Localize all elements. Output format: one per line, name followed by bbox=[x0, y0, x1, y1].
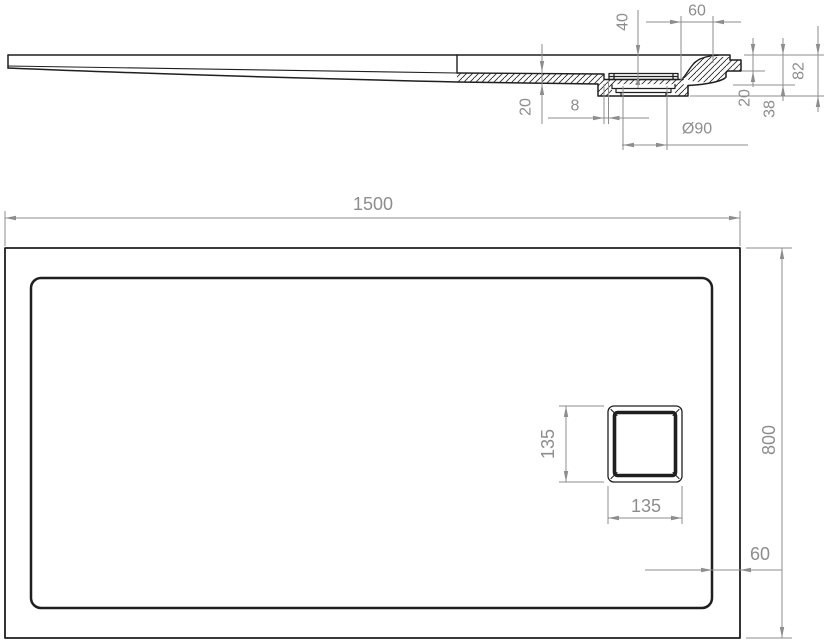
dim-label-20-edge: 20 bbox=[737, 89, 754, 107]
hatch-drain-boss-left bbox=[598, 84, 612, 96]
dim-arrow bbox=[751, 44, 755, 55]
dim-arrow bbox=[701, 568, 712, 572]
plan-view: 1500 800 135 135 60 bbox=[5, 194, 792, 638]
dim-arrow bbox=[5, 216, 16, 220]
hatch-drain-boss-right bbox=[675, 84, 688, 96]
dim-arrow bbox=[781, 85, 785, 96]
dim-arrow bbox=[564, 406, 568, 417]
dim-arrow bbox=[713, 20, 724, 24]
dim-arrow bbox=[729, 216, 740, 220]
dim-arrow bbox=[608, 516, 619, 520]
dim-arrow bbox=[740, 568, 751, 572]
dim-arrow bbox=[623, 143, 634, 147]
dim-label-20-floor: 20 bbox=[518, 98, 535, 116]
hatch-rim-edge bbox=[683, 57, 741, 83]
dim-label-135-vertical: 135 bbox=[538, 429, 558, 459]
drain-cover-outer bbox=[608, 406, 682, 482]
dim-arrow bbox=[780, 627, 784, 638]
dim-arrow bbox=[671, 516, 682, 520]
drain-cover-corner-ticks bbox=[611, 410, 679, 479]
dim-arrow bbox=[593, 116, 604, 120]
dim-label-40: 40 bbox=[615, 13, 632, 31]
drain-cover-frame bbox=[615, 413, 676, 476]
dim-arrow bbox=[781, 44, 785, 55]
dim-arrow bbox=[540, 61, 544, 72]
dim-label-diameter-90: Ø90 bbox=[682, 121, 712, 138]
drawing-svg: 40 60 20 8 Ø90 20 bbox=[0, 0, 826, 643]
dim-label-1500: 1500 bbox=[353, 194, 393, 214]
dim-arrow bbox=[564, 471, 568, 482]
tray-inner-taper-line bbox=[8, 66, 457, 73]
dim-arrow bbox=[670, 20, 681, 24]
dim-label-38: 38 bbox=[762, 100, 779, 118]
section-view: 40 60 20 8 Ø90 20 bbox=[8, 3, 824, 151]
dim-label-800: 800 bbox=[759, 425, 779, 455]
drain-cover-section bbox=[609, 74, 678, 80]
dim-label-8: 8 bbox=[571, 98, 580, 115]
dim-arrow bbox=[780, 248, 784, 259]
dim-arrow bbox=[540, 84, 544, 95]
dim-arrow bbox=[609, 116, 620, 120]
dim-label-60-plan: 60 bbox=[750, 544, 770, 564]
dim-label-82: 82 bbox=[791, 62, 808, 80]
dim-arrow bbox=[816, 44, 820, 55]
drain-flange-steps bbox=[612, 85, 675, 97]
dim-label-135-horizontal: 135 bbox=[631, 496, 661, 516]
hatch-under-recess bbox=[604, 80, 683, 85]
technical-drawing-canvas: 40 60 20 8 Ø90 20 bbox=[0, 0, 826, 643]
dim-arrow bbox=[751, 71, 755, 82]
tray-outer-rect bbox=[5, 248, 740, 638]
dim-arrow bbox=[816, 96, 820, 107]
tray-basin-rect bbox=[31, 278, 712, 608]
dim-label-60-section: 60 bbox=[688, 3, 706, 20]
dim-arrow bbox=[656, 143, 667, 147]
